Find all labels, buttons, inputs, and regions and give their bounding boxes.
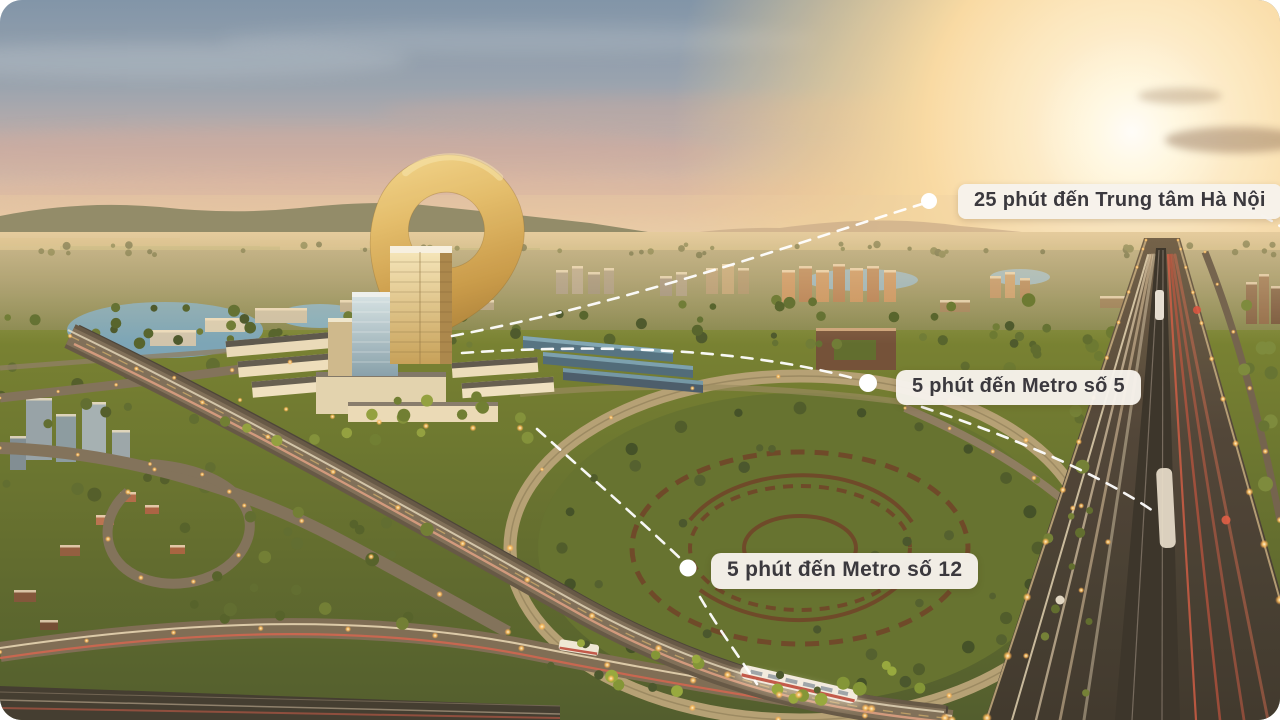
callout-hanoi-label: 25 phút đến Trung tâm Hà Nội [974,189,1266,211]
aerial-city-render: 25 phút đến Trung tâm Hà Nội 5 phút đến … [0,0,1280,720]
callout-metro-12: 5 phút đến Metro số 12 [711,553,978,589]
route-dot-metro12 [680,560,697,577]
color-grade-overlay [0,0,1280,720]
route-dot-metro5 [859,374,877,392]
callout-hanoi-center: 25 phút đến Trung tâm Hà Nội [958,184,1280,219]
callout-metro-5: 5 phút đến Metro số 5 [896,370,1141,405]
callout-metro12-label: 5 phút đến Metro số 12 [727,558,962,581]
route-dot-hanoi [921,193,937,209]
city-scene-illustration [0,0,1280,720]
callout-metro5-label: 5 phút đến Metro số 5 [912,375,1125,397]
